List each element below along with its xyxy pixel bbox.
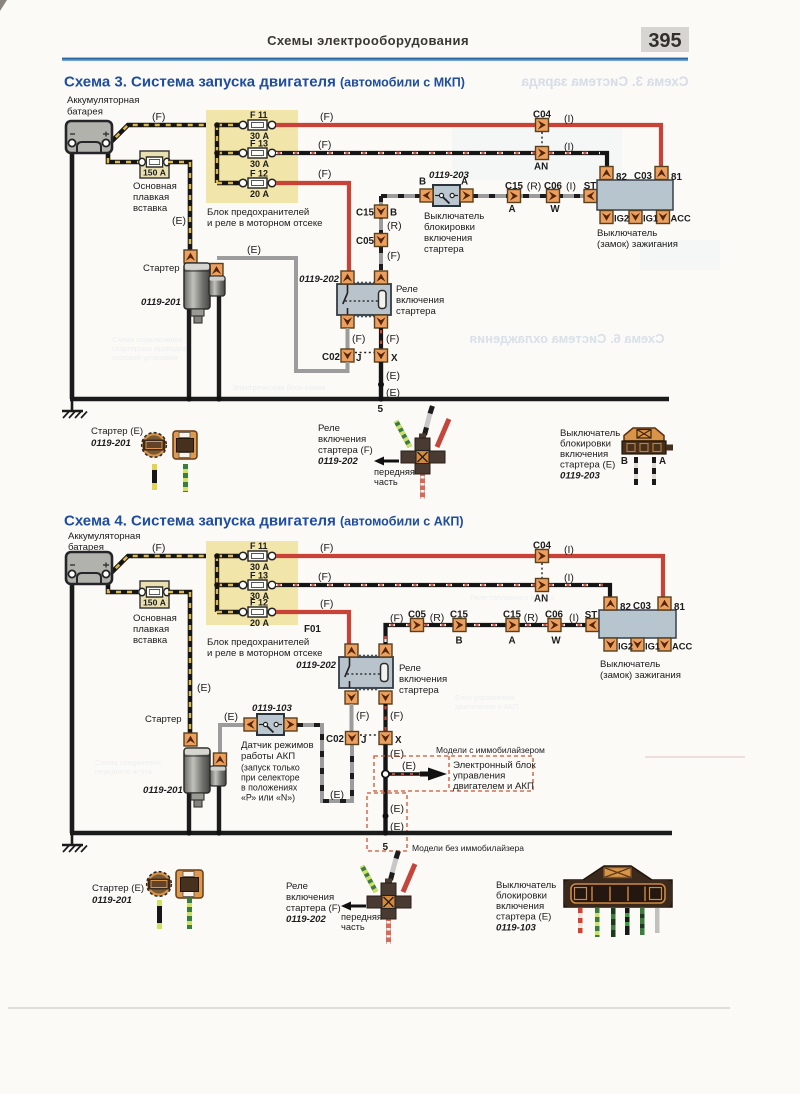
svg-text:Стартер: Стартер (143, 263, 180, 274)
svg-text:Аккумуляторная: Аккумуляторная (68, 531, 140, 542)
svg-text:AN: AN (534, 162, 548, 173)
svg-text:0119-202: 0119-202 (296, 660, 336, 671)
svg-text:(F): (F) (386, 333, 399, 345)
svg-text:управления: управления (453, 771, 505, 782)
svg-text:C15: C15 (356, 208, 375, 219)
svg-text:(E): (E) (330, 789, 344, 801)
svg-text:X: X (395, 735, 402, 746)
svg-text:C04: C04 (533, 541, 552, 552)
svg-text:(E): (E) (172, 215, 186, 227)
svg-text:стартера (F): стартера (F) (318, 445, 373, 456)
svg-text:W: W (550, 204, 560, 215)
svg-text:(замок) зажигания: (замок) зажигания (597, 239, 678, 250)
svg-text:часть: часть (374, 477, 398, 487)
svg-text:Аккумуляторная: Аккумуляторная (67, 95, 139, 106)
svg-text:включения: включения (318, 434, 366, 445)
svg-text:(R): (R) (430, 612, 445, 624)
svg-text:C15: C15 (450, 610, 469, 621)
svg-text:включения: включения (496, 901, 544, 912)
svg-text:ST: ST (584, 181, 597, 192)
svg-text:Реле: Реле (396, 284, 418, 295)
svg-text:0119-201: 0119-201 (91, 438, 131, 449)
svg-text:0119-201: 0119-201 (143, 785, 183, 796)
svg-text:включения: включения (424, 233, 472, 244)
svg-text:Основная: Основная (133, 613, 177, 624)
svg-text:20 А: 20 А (250, 618, 270, 628)
svg-text:(запуск только: (запуск только (241, 763, 300, 773)
svg-text:Электронный блок: Электронный блок (453, 760, 537, 771)
svg-text:J: J (361, 735, 366, 746)
svg-text:(F): (F) (387, 250, 400, 262)
svg-text:0119-103: 0119-103 (496, 923, 536, 934)
svg-text:A: A (461, 177, 468, 188)
svg-text:переднего жгута: переднего жгута (95, 767, 153, 776)
svg-text:Схема 4. Система запуска двига: Схема 4. Система запуска двигателя (авто… (64, 513, 464, 530)
svg-text:150 А: 150 А (143, 598, 166, 608)
svg-text:(R): (R) (527, 181, 542, 193)
svg-text:стартера (E): стартера (E) (560, 460, 615, 471)
svg-text:B: B (390, 208, 397, 219)
svg-text:Реле топливного насоса: Реле топливного насоса (470, 593, 556, 602)
svg-text:B: B (621, 456, 628, 467)
svg-text:(F): (F) (318, 168, 331, 180)
svg-text:(R): (R) (387, 220, 402, 232)
svg-text:C05: C05 (408, 610, 427, 621)
svg-text:в положениях: в положениях (241, 783, 298, 793)
svg-text:(E): (E) (197, 682, 211, 694)
svg-text:0119-201: 0119-201 (92, 895, 132, 906)
svg-text:блокировки: блокировки (560, 439, 611, 450)
svg-text:C05: C05 (356, 236, 375, 247)
svg-text:стартера: стартера (399, 685, 440, 696)
svg-text:A: A (508, 204, 515, 215)
svg-text:B: B (455, 636, 462, 647)
svg-text:Схема 6. Система охлаждения: Схема 6. Система охлаждения (470, 331, 665, 346)
svg-text:(I): (I) (564, 572, 574, 584)
svg-text:F 13: F 13 (250, 571, 268, 581)
svg-text:Схема 3. Система запуска двига: Схема 3. Система запуска двигателя (авто… (64, 74, 465, 91)
svg-text:(I): (I) (564, 113, 574, 125)
svg-text:F 11: F 11 (250, 541, 268, 551)
svg-text:Стартер: Стартер (145, 714, 182, 725)
svg-text:IG2: IG2 (618, 641, 633, 652)
svg-text:5: 5 (382, 842, 388, 853)
svg-text:Датчик режимов: Датчик режимов (241, 740, 314, 751)
svg-text:0119-202: 0119-202 (299, 274, 339, 285)
svg-text:блокировки: блокировки (424, 222, 475, 233)
svg-text:(F): (F) (320, 542, 333, 554)
svg-text:стартера (E): стартера (E) (496, 912, 551, 923)
svg-text:Стартер (E): Стартер (E) (91, 426, 143, 437)
svg-text:F 12: F 12 (250, 598, 268, 608)
svg-text:включения: включения (396, 295, 444, 306)
svg-text:(I): (I) (564, 544, 574, 556)
svg-text:C03: C03 (634, 171, 653, 182)
svg-text:Модели без иммобилайзера: Модели без иммобилайзера (412, 843, 524, 853)
svg-text:150 А: 150 А (143, 168, 166, 178)
svg-text:часть: часть (341, 922, 365, 932)
svg-text:J: J (356, 353, 361, 364)
svg-text:82: 82 (616, 172, 627, 183)
svg-text:Электрическая блок-схема: Электрическая блок-схема (232, 383, 327, 392)
svg-text:(R): (R) (524, 612, 539, 624)
svg-text:силовой установки: силовой установки (112, 353, 178, 362)
svg-text:Реле: Реле (318, 423, 340, 434)
svg-text:30 А: 30 А (250, 159, 270, 169)
svg-text:стартера (F): стартера (F) (286, 903, 341, 914)
svg-text:плавкая: плавкая (133, 624, 169, 635)
svg-text:0119-202: 0119-202 (318, 456, 358, 467)
svg-text:F01: F01 (304, 624, 321, 635)
svg-text:C06: C06 (544, 181, 563, 192)
svg-text:0119-202: 0119-202 (286, 914, 326, 925)
svg-text:C15: C15 (505, 181, 524, 192)
svg-text:(F): (F) (318, 139, 331, 151)
svg-text:(E): (E) (402, 760, 416, 772)
svg-text:батарея: батарея (67, 107, 103, 118)
svg-text:(E): (E) (390, 748, 404, 760)
svg-text:(F): (F) (390, 613, 403, 625)
svg-text:Схема соединения: Схема соединения (95, 758, 161, 767)
svg-text:W: W (551, 636, 561, 647)
svg-text:(F): (F) (320, 598, 333, 610)
svg-text:B: B (419, 177, 426, 188)
svg-text:Модели с иммобилайзером: Модели с иммобилайзером (436, 745, 545, 755)
svg-text:5: 5 (377, 404, 383, 415)
svg-text:X: X (391, 353, 398, 364)
svg-text:A: A (659, 456, 666, 467)
svg-text:плавкая: плавкая (133, 192, 169, 203)
svg-text:двигателем и АКП: двигателем и АКП (453, 781, 534, 792)
svg-text:двигателем и АКП: двигателем и АКП (455, 702, 518, 711)
svg-text:и реле в моторном отсеке: и реле в моторном отсеке (207, 648, 323, 659)
svg-text:и реле в моторном отсеке: и реле в моторном отсеке (207, 218, 323, 229)
svg-text:при селекторе: при селекторе (241, 773, 300, 783)
svg-text:IG1: IG1 (645, 641, 660, 652)
svg-text:ACC: ACC (672, 641, 693, 652)
svg-text:«Р» или «N»): «Р» или «N») (241, 793, 295, 803)
svg-text:включения: включения (399, 674, 447, 685)
svg-text:(E): (E) (224, 711, 238, 723)
svg-text:C02: C02 (322, 352, 341, 363)
svg-text:Схема 3. Система заряда: Схема 3. Система заряда (521, 74, 688, 89)
svg-text:стартера: стартера (424, 244, 465, 255)
svg-text:передняя: передняя (374, 467, 415, 477)
svg-text:20 А: 20 А (250, 189, 270, 199)
svg-text:Реле: Реле (286, 881, 308, 892)
svg-text:вставка: вставка (133, 635, 168, 646)
svg-text:блокировки: блокировки (496, 891, 547, 902)
svg-text:F 13: F 13 (250, 139, 268, 149)
svg-text:82: 82 (620, 602, 631, 613)
svg-text:Блок управления: Блок управления (455, 693, 515, 702)
svg-text:(I): (I) (564, 141, 574, 153)
svg-text:Блок предохранителей: Блок предохранителей (207, 637, 309, 648)
svg-text:(E): (E) (386, 370, 400, 382)
svg-text:(F): (F) (320, 111, 333, 123)
svg-text:вставка: вставка (133, 203, 168, 214)
svg-text:работы АКП: работы АКП (241, 751, 295, 762)
svg-text:C15: C15 (503, 610, 522, 621)
svg-text:стартера: стартера (396, 306, 437, 317)
svg-text:Схемы электрооборудования: Схемы электрооборудования (267, 33, 469, 48)
svg-text:81: 81 (674, 602, 685, 613)
svg-text:Выключатель: Выключатель (597, 228, 657, 239)
svg-text:включения: включения (286, 892, 334, 903)
svg-text:C04: C04 (533, 110, 552, 121)
svg-text:0119-103: 0119-103 (252, 703, 292, 714)
svg-text:C02: C02 (326, 734, 345, 745)
svg-text:(I): (I) (566, 181, 576, 193)
svg-text:F 12: F 12 (250, 169, 268, 179)
svg-text:C03: C03 (633, 601, 652, 612)
svg-text:(E): (E) (390, 803, 404, 815)
svg-text:C06: C06 (545, 610, 564, 621)
svg-text:IG1: IG1 (643, 213, 658, 224)
svg-text:Реле: Реле (399, 663, 421, 674)
svg-text:ACC: ACC (671, 213, 692, 224)
svg-text:(F): (F) (390, 710, 403, 722)
svg-text:Выключатель: Выключатель (560, 428, 620, 439)
svg-text:(F): (F) (356, 710, 369, 722)
svg-text:Выключатель: Выключатель (600, 659, 660, 670)
svg-text:Стартер (E): Стартер (E) (92, 883, 144, 894)
svg-text:(F): (F) (318, 571, 331, 583)
svg-text:395: 395 (648, 30, 681, 52)
svg-text:Выключатель: Выключатель (424, 211, 484, 222)
svg-text:стартерных проводов: стартерных проводов (112, 344, 187, 353)
svg-text:(замок) зажигания: (замок) зажигания (600, 670, 681, 681)
svg-text:включения: включения (560, 449, 608, 460)
svg-text:(E): (E) (247, 244, 261, 256)
svg-text:Схема подключения: Схема подключения (112, 335, 183, 344)
svg-text:ST: ST (585, 610, 598, 621)
svg-text:Блок предохранителей: Блок предохранителей (207, 207, 309, 218)
svg-text:передняя: передняя (341, 912, 382, 922)
svg-text:A: A (508, 636, 515, 647)
svg-text:IG2: IG2 (614, 213, 629, 224)
svg-text:0119-203: 0119-203 (560, 471, 600, 482)
svg-text:(F): (F) (152, 542, 165, 554)
svg-text:(F): (F) (352, 333, 365, 345)
svg-text:(I): (I) (569, 612, 579, 624)
svg-text:F 11: F 11 (250, 110, 268, 120)
svg-text:0119-201: 0119-201 (141, 297, 181, 308)
svg-text:Выключатель: Выключатель (496, 880, 556, 891)
svg-text:(F): (F) (152, 111, 165, 123)
svg-text:Основная: Основная (133, 181, 177, 192)
svg-text:81: 81 (671, 172, 682, 183)
